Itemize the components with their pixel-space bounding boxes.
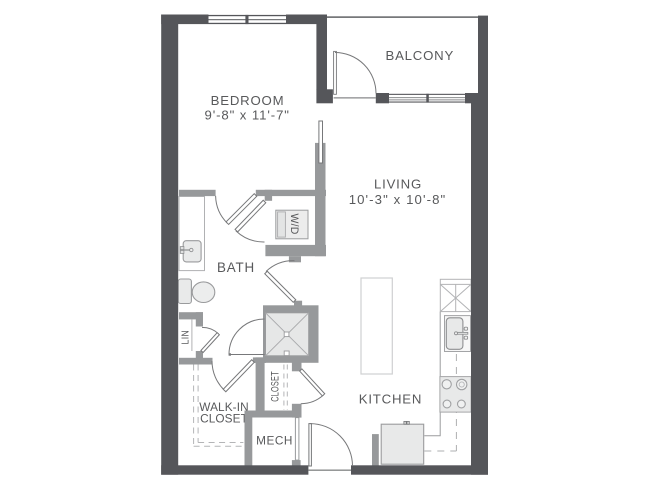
svg-text:BALCONY: BALCONY xyxy=(385,48,454,63)
svg-text:CLOSET: CLOSET xyxy=(200,411,248,425)
svg-text:BEDROOM: BEDROOM xyxy=(211,93,285,108)
svg-text:LIN: LIN xyxy=(179,330,191,344)
svg-text:KITCHEN: KITCHEN xyxy=(359,391,422,406)
svg-text:BATH: BATH xyxy=(217,260,255,275)
svg-text:CLOSET: CLOSET xyxy=(269,371,281,402)
svg-text:W/D: W/D xyxy=(288,214,300,235)
svg-text:10'-3" x 10'-8": 10'-3" x 10'-8" xyxy=(349,192,447,207)
svg-text:LIVING: LIVING xyxy=(374,177,422,192)
svg-text:9'-8" x 11'-7": 9'-8" x 11'-7" xyxy=(204,107,289,122)
svg-text:MECH: MECH xyxy=(256,434,293,448)
